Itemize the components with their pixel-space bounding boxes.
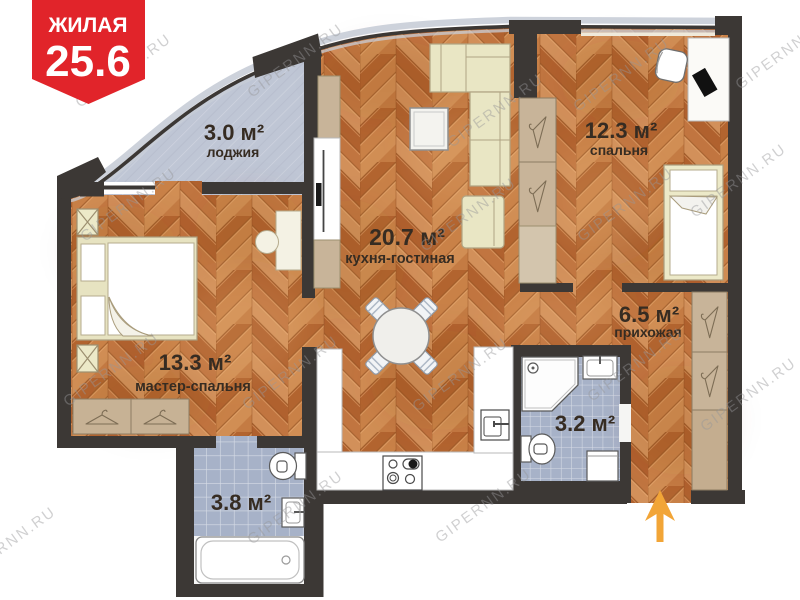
svg-text:кухня-гостиная: кухня-гостиная [345, 251, 455, 267]
svg-text:3.8 м²: 3.8 м² [211, 490, 271, 515]
svg-text:ЖИЛАЯ: ЖИЛАЯ [47, 14, 127, 37]
svg-text:3.2 м²: 3.2 м² [555, 411, 615, 436]
svg-text:лоджия: лоджия [207, 144, 260, 160]
svg-text:13.3 м²: 13.3 м² [159, 350, 232, 375]
svg-text:мастер-спальня: мастер-спальня [135, 379, 251, 395]
svg-text:спальня: спальня [590, 142, 648, 158]
svg-text:3.0 м²: 3.0 м² [204, 120, 264, 145]
svg-text:25.6: 25.6 [45, 37, 131, 86]
svg-text:12.3 м²: 12.3 м² [585, 118, 658, 143]
